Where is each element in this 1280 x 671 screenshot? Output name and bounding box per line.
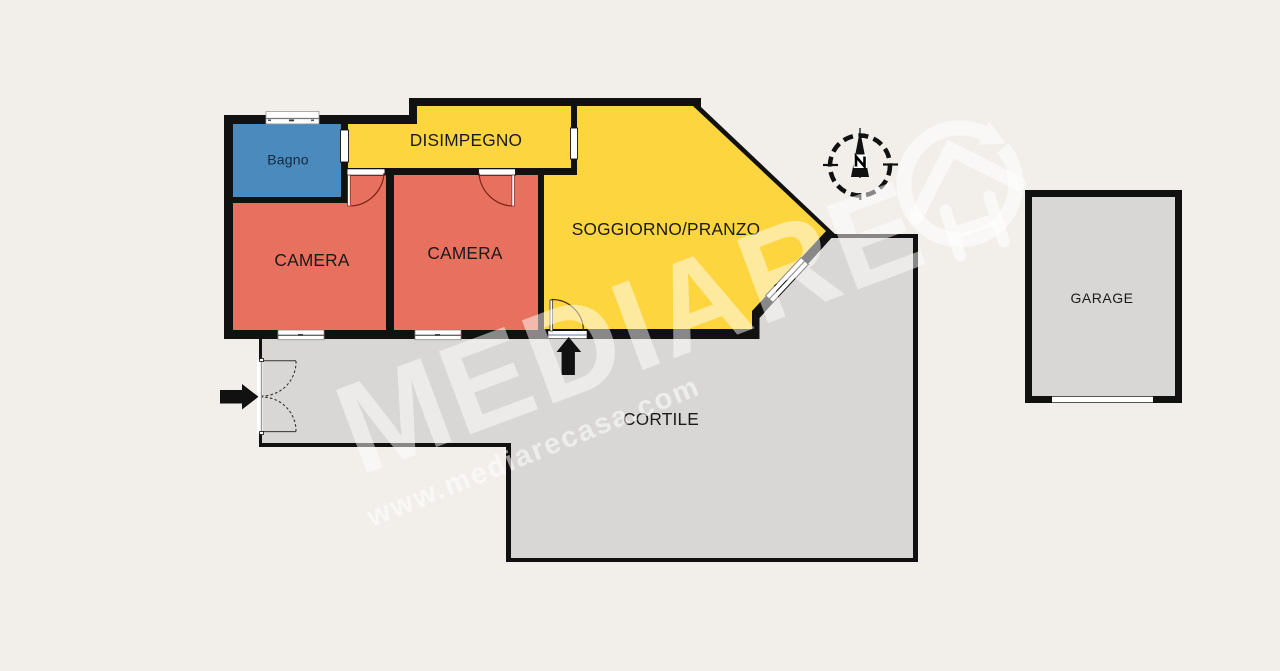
svg-text:Bagno: Bagno (267, 152, 308, 168)
svg-text:DISIMPEGNO: DISIMPEGNO (410, 130, 522, 150)
svg-text:CAMERA: CAMERA (274, 250, 349, 270)
svg-text:CAMERA: CAMERA (427, 243, 502, 263)
svg-text:GARAGE: GARAGE (1071, 290, 1134, 306)
